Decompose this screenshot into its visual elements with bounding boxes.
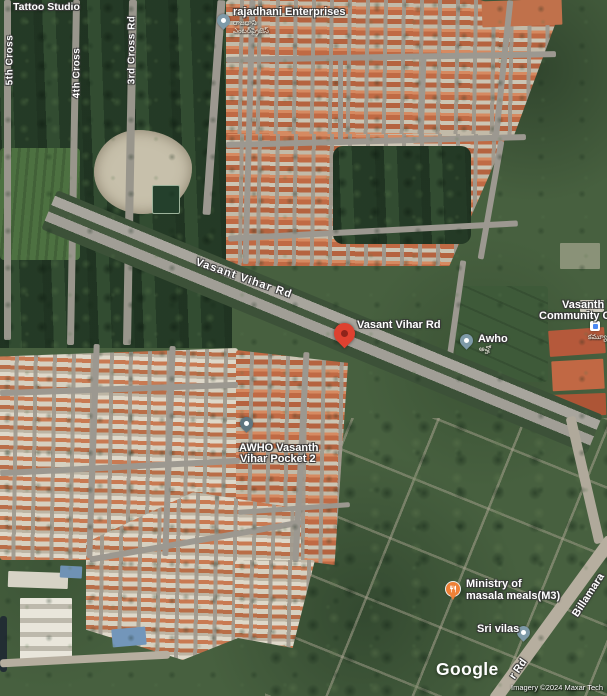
- imagery-attribution: Imagery ©2024 Maxar Tech: [511, 683, 603, 692]
- road-label-4th-cross: 4th Cross: [72, 48, 83, 99]
- community-center-icon[interactable]: [590, 321, 600, 331]
- community-center-building: [548, 327, 606, 357]
- poi-label-tattoo-studio[interactable]: Tattoo Studio: [13, 1, 80, 13]
- blue-roof-building: [111, 627, 146, 648]
- poi-sublabel-awho: అవ్హో: [479, 346, 491, 354]
- sports-court: [152, 185, 180, 214]
- poi-label-ministry-line1[interactable]: Ministry of: [466, 578, 522, 590]
- community-center-glyph: [593, 324, 598, 329]
- warehouse-building: [20, 598, 72, 660]
- road-label-5th-cross: 5th Cross: [5, 35, 16, 86]
- poi-label-community-center-line2[interactable]: Community Cen: [539, 310, 607, 322]
- poi-label-destination[interactable]: Vasant Vihar Rd: [357, 319, 441, 331]
- restaurant-icon: [449, 585, 457, 593]
- poi-sublabel-rajadhani: రాజధాని ఎంటర్‌ప్రైజెస్: [233, 20, 291, 35]
- walled-plot: [560, 243, 600, 269]
- poi-label-awho[interactable]: Awho: [478, 333, 508, 345]
- large-roof-building: [482, 0, 563, 27]
- poi-label-sri-vilas[interactable]: Sri vilas: [477, 623, 519, 635]
- google-logo[interactable]: Google: [436, 659, 499, 680]
- poi-label-rajadhani[interactable]: rajadhani Enterprises: [233, 6, 346, 18]
- poi-label-awho-pocket-line2[interactable]: Vihar Pocket 2: [240, 453, 316, 465]
- poi-sublabel-community-center: కమ్యూనిటీ: [588, 334, 607, 342]
- blue-roof-building: [60, 565, 83, 578]
- road-label-3rd-cross: 3rd Cross Rd: [127, 16, 138, 85]
- community-center-building: [551, 359, 604, 392]
- poi-label-ministry-line2[interactable]: masala meals(M3): [466, 590, 560, 602]
- road: [338, 56, 343, 142]
- satellite-map-canvas[interactable]: 5th Cross 4th Cross 3rd Cross Rd Vasant …: [0, 0, 607, 696]
- ministry-restaurant-pin-icon[interactable]: [446, 582, 460, 596]
